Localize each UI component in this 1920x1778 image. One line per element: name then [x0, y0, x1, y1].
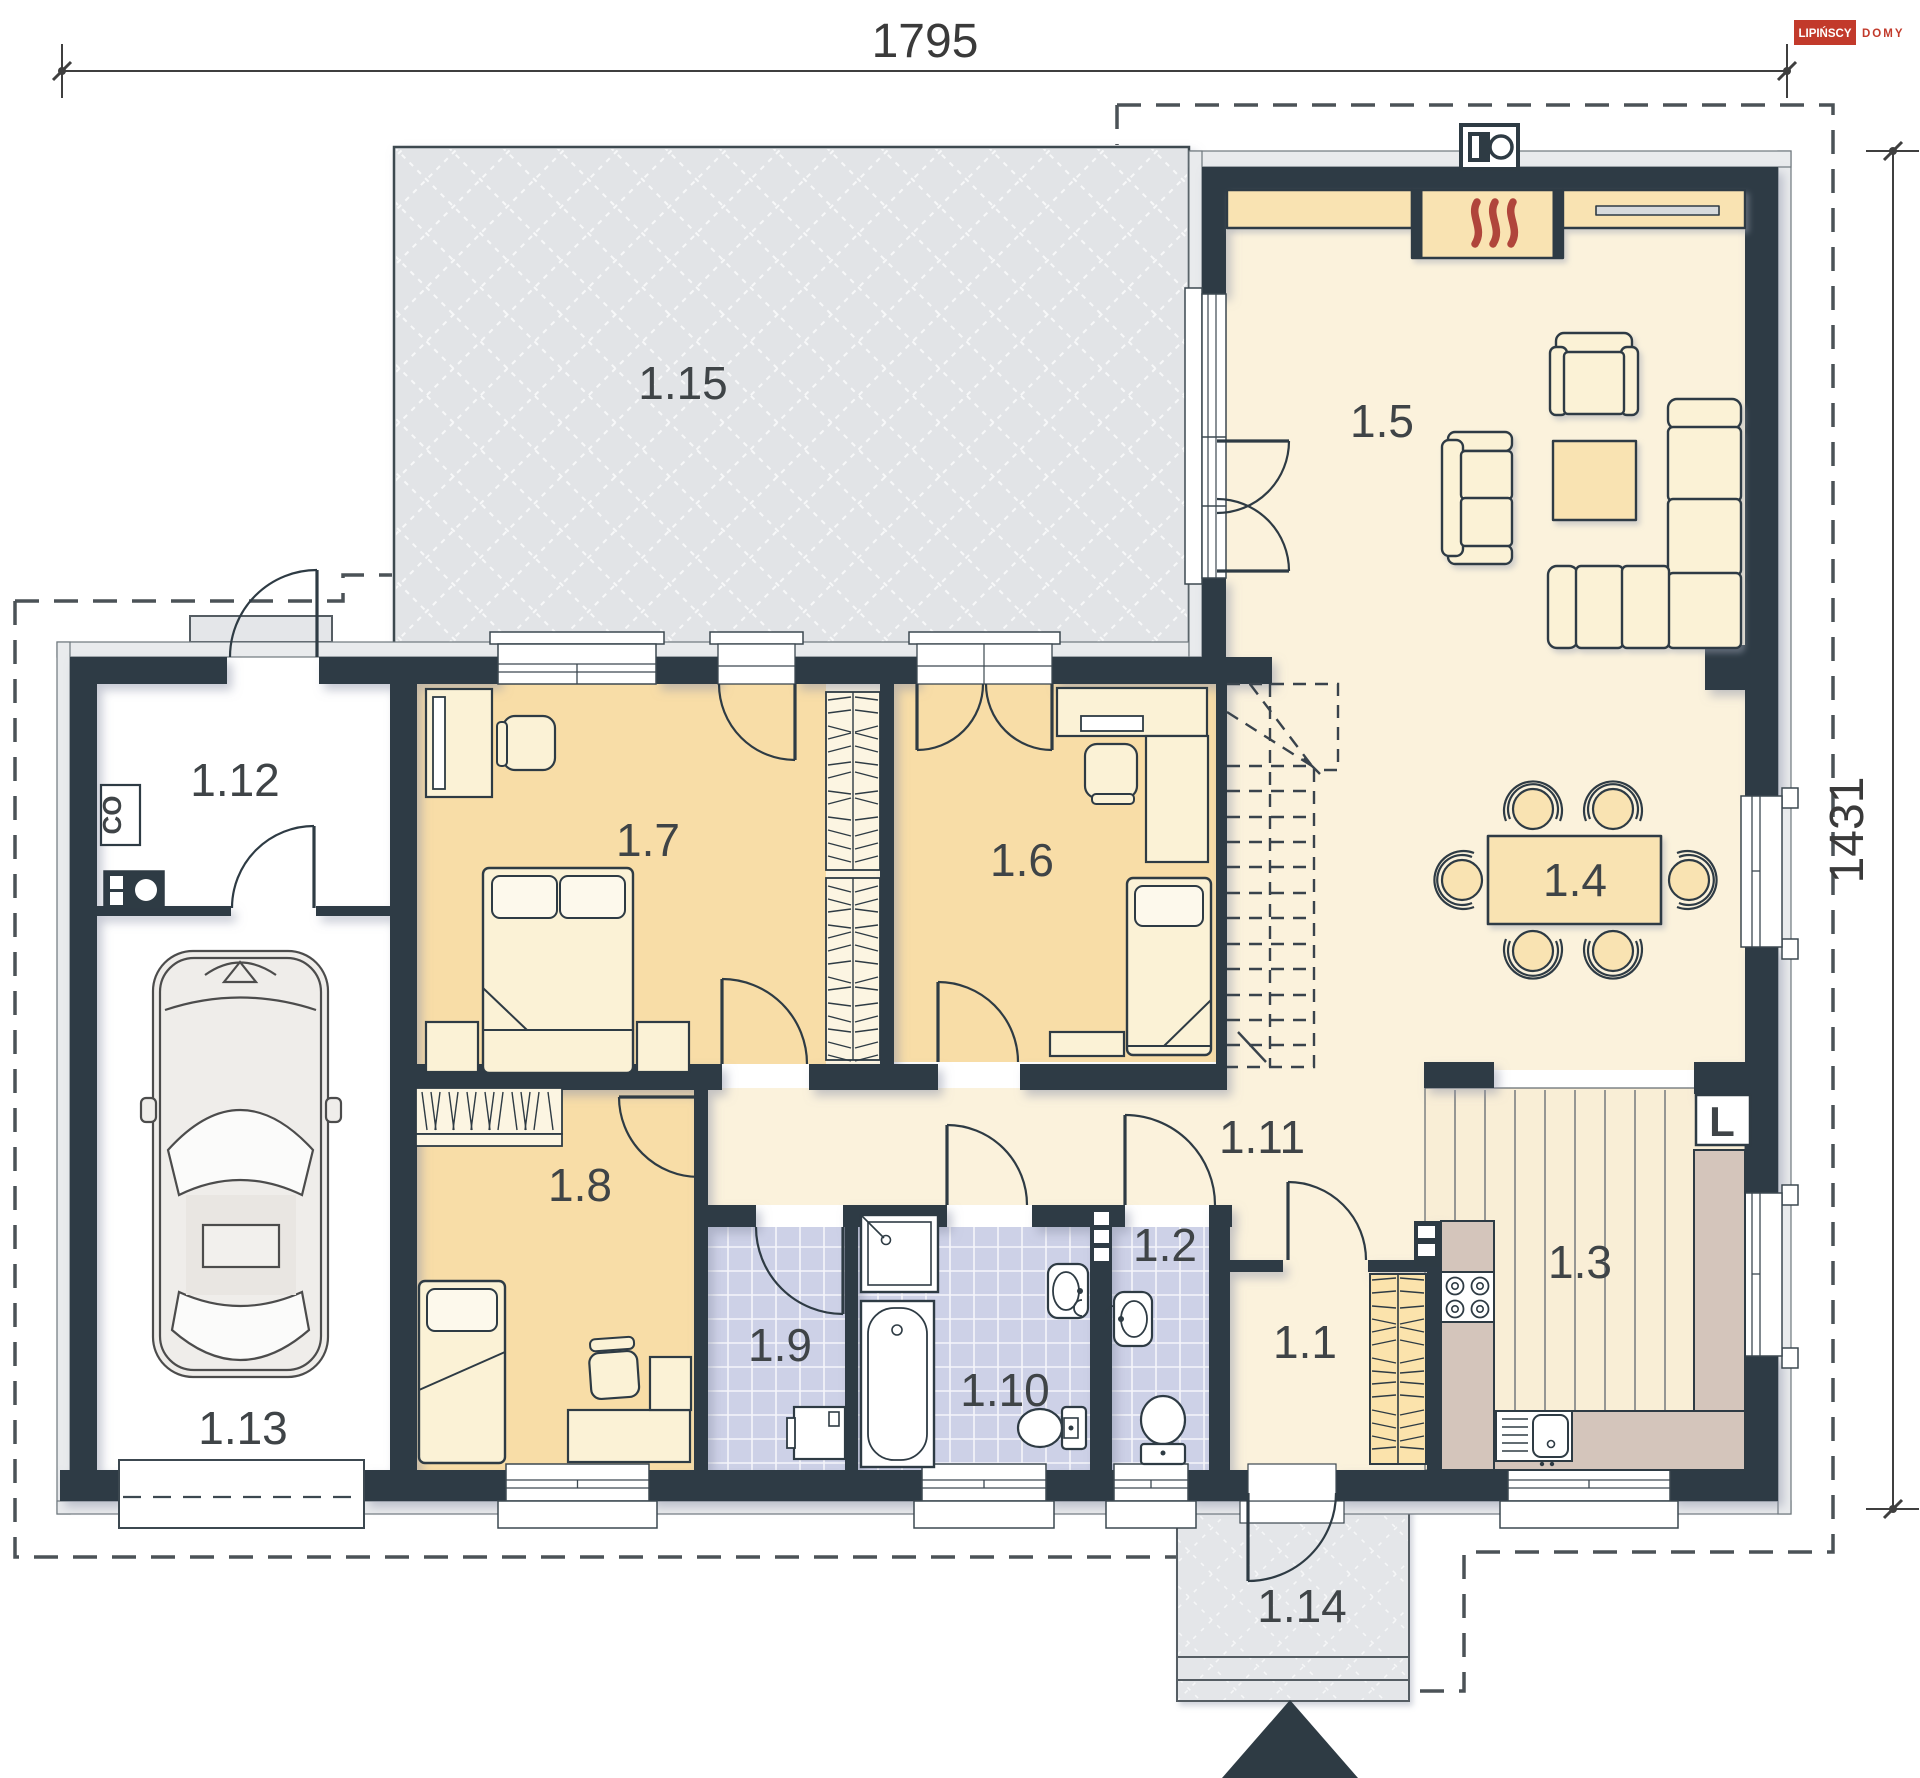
svg-text:1795: 1795	[872, 15, 979, 68]
svg-text:1.12: 1.12	[190, 754, 280, 806]
svg-text:1.15: 1.15	[638, 357, 728, 409]
svg-text:LIPIŃSCY: LIPIŃSCY	[1798, 27, 1851, 40]
svg-text:1.5: 1.5	[1350, 395, 1414, 447]
svg-text:1.6: 1.6	[990, 834, 1054, 886]
svg-text:1.9: 1.9	[748, 1319, 812, 1371]
svg-text:1.11: 1.11	[1219, 1111, 1305, 1163]
svg-text:1.2: 1.2	[1133, 1219, 1197, 1271]
svg-text:DOMY: DOMY	[1862, 28, 1905, 40]
svg-text:L: L	[1709, 1098, 1735, 1145]
svg-text:1.3: 1.3	[1548, 1236, 1612, 1288]
svg-text:1.14: 1.14	[1257, 1580, 1347, 1632]
svg-text:1.4: 1.4	[1543, 854, 1607, 906]
svg-text:1431: 1431	[1821, 777, 1874, 884]
svg-text:1.10: 1.10	[960, 1364, 1050, 1416]
svg-text:1.13: 1.13	[198, 1402, 288, 1454]
svg-text:1.8: 1.8	[548, 1159, 612, 1211]
svg-text:1.1: 1.1	[1273, 1316, 1337, 1368]
svg-text:CO: CO	[97, 796, 127, 835]
svg-text:1.7: 1.7	[616, 814, 680, 866]
